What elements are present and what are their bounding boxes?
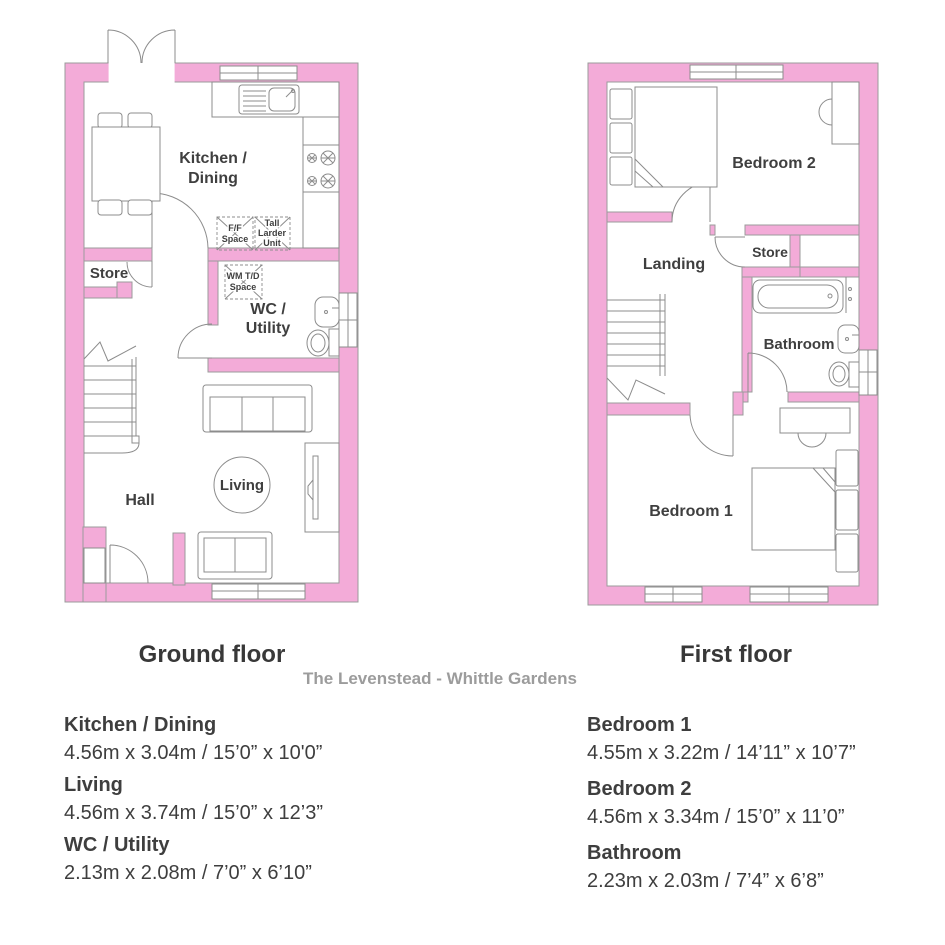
first-floor-title: First floor <box>586 641 886 669</box>
dimension-room-size: 4.56m x 3.74m / 15’0” x 12’3” <box>64 799 323 827</box>
larder-label-2: Larder <box>258 228 287 238</box>
kitchen-window <box>220 66 297 80</box>
bedroom1-window-left <box>645 587 702 602</box>
dimension-room-size: 4.55m x 3.22m / 14’11” x 10’7” <box>587 739 856 767</box>
tv-unit <box>305 443 339 532</box>
room-label-store: Store <box>90 265 128 282</box>
larder-label-1: Tall <box>265 218 280 228</box>
ff-space-label-1: F/F <box>228 223 242 233</box>
wc-basin <box>315 297 339 327</box>
washer-dryer-space: WM T/D Space <box>225 265 262 299</box>
dimension-entry: Kitchen / Dining 4.56m x 3.04m / 15’0” x… <box>64 711 323 767</box>
dimension-entry: Bedroom 1 4.55m x 3.22m / 14’11” x 10’7” <box>587 711 856 767</box>
entrance-recess <box>84 548 105 583</box>
ground-stairs <box>84 342 139 453</box>
ground-floor-dimensions: Kitchen / Dining 4.56m x 3.04m / 15’0” x… <box>64 711 323 891</box>
dimension-entry: Bedroom 2 4.56m x 3.34m / 15’0” x 11’0” <box>587 775 856 831</box>
floorplan-page: F/F Space Tall Larder Unit WM T/D Space <box>0 0 945 945</box>
wm-space-label-2: Space <box>230 282 257 292</box>
larder-label-3: Unit <box>263 238 281 248</box>
dimension-room-name: Kitchen / Dining <box>64 711 323 739</box>
dimension-entry: WC / Utility 2.13m x 2.08m / 7’0” x 6’10… <box>64 831 323 887</box>
bathroom-basin <box>838 325 859 353</box>
living-window <box>212 584 305 599</box>
first-floor-plan: Bedroom 2 Landing Store Bathroom Bedroom… <box>586 58 886 608</box>
dimension-room-size: 2.13m x 2.08m / 7’0” x 6’10” <box>64 859 323 887</box>
bathroom-door <box>748 353 787 392</box>
ff-space-label-2: Space <box>222 234 249 244</box>
room-label-bathroom: Bathroom <box>764 336 835 353</box>
dimension-room-size: 2.23m x 2.03m / 7’4” x 6’8” <box>587 867 856 895</box>
kitchen-hob <box>303 145 339 192</box>
sofa-large <box>203 385 312 432</box>
room-label-wc-1: WC / <box>250 301 286 318</box>
dimension-entry: Bathroom 2.23m x 2.03m / 7’4” x 6’8” <box>587 839 856 895</box>
room-label-bedroom2: Bedroom 2 <box>732 155 816 172</box>
dining-table-chairs <box>92 113 160 215</box>
wc-door <box>178 324 212 358</box>
ground-floor-title: Ground floor <box>62 641 362 669</box>
room-label-landing: Landing <box>643 256 705 273</box>
bedroom2-door <box>672 182 710 222</box>
bathroom-toilet <box>829 362 859 387</box>
french-doors <box>108 30 175 63</box>
room-label-store-first: Store <box>752 244 788 260</box>
dimension-room-name: Bathroom <box>587 839 856 867</box>
wm-space-label-1: WM T/D <box>227 271 260 281</box>
room-label-wc-2: Utility <box>246 320 291 337</box>
bath <box>753 277 852 313</box>
bathroom-window <box>859 350 877 395</box>
tall-larder-unit: Tall Larder Unit <box>255 217 290 250</box>
room-label-kitchen-1: Kitchen / <box>179 150 247 167</box>
dimension-room-name: Living <box>64 771 323 799</box>
ground-doors <box>108 30 212 583</box>
sofa-small <box>198 532 272 579</box>
fridge-freezer-space: F/F Space <box>217 217 253 250</box>
dimension-room-size: 4.56m x 3.04m / 15’0” x 10'0” <box>64 739 323 767</box>
room-label-kitchen-2: Dining <box>188 170 238 187</box>
development-name: The Levenstead - Whittle Gardens <box>240 669 640 689</box>
dimension-room-name: Bedroom 2 <box>587 775 856 803</box>
first-stairs <box>607 294 665 400</box>
dimension-room-name: Bedroom 1 <box>587 711 856 739</box>
wc-window <box>339 293 357 347</box>
dimension-room-size: 4.56m x 3.34m / 15’0” x 11’0” <box>587 803 856 831</box>
room-label-living: Living <box>220 477 264 494</box>
bedroom1-desk <box>780 408 850 447</box>
bedroom1-door <box>690 415 733 456</box>
first-floor-dimensions: Bedroom 1 4.55m x 3.22m / 14’11” x 10’7”… <box>587 711 856 903</box>
room-label-bedroom1: Bedroom 1 <box>649 503 733 520</box>
front-door <box>110 545 148 583</box>
store-door-first <box>715 237 745 267</box>
bedroom1-bed <box>752 450 858 572</box>
bedroom2-bed <box>610 87 717 187</box>
room-label-hall: Hall <box>125 492 154 509</box>
ground-floor-plan: F/F Space Tall Larder Unit WM T/D Space <box>62 25 362 625</box>
dimension-entry: Living 4.56m x 3.74m / 15’0” x 12’3” <box>64 771 323 827</box>
bedroom1-window-right <box>750 587 828 602</box>
bedroom2-wardrobe <box>819 82 859 144</box>
wc-toilet <box>307 329 339 356</box>
dimension-room-name: WC / Utility <box>64 831 323 859</box>
kitchen-sink <box>239 85 299 114</box>
bedroom2-window <box>690 65 783 79</box>
hall-living-stub-wall <box>173 533 185 585</box>
